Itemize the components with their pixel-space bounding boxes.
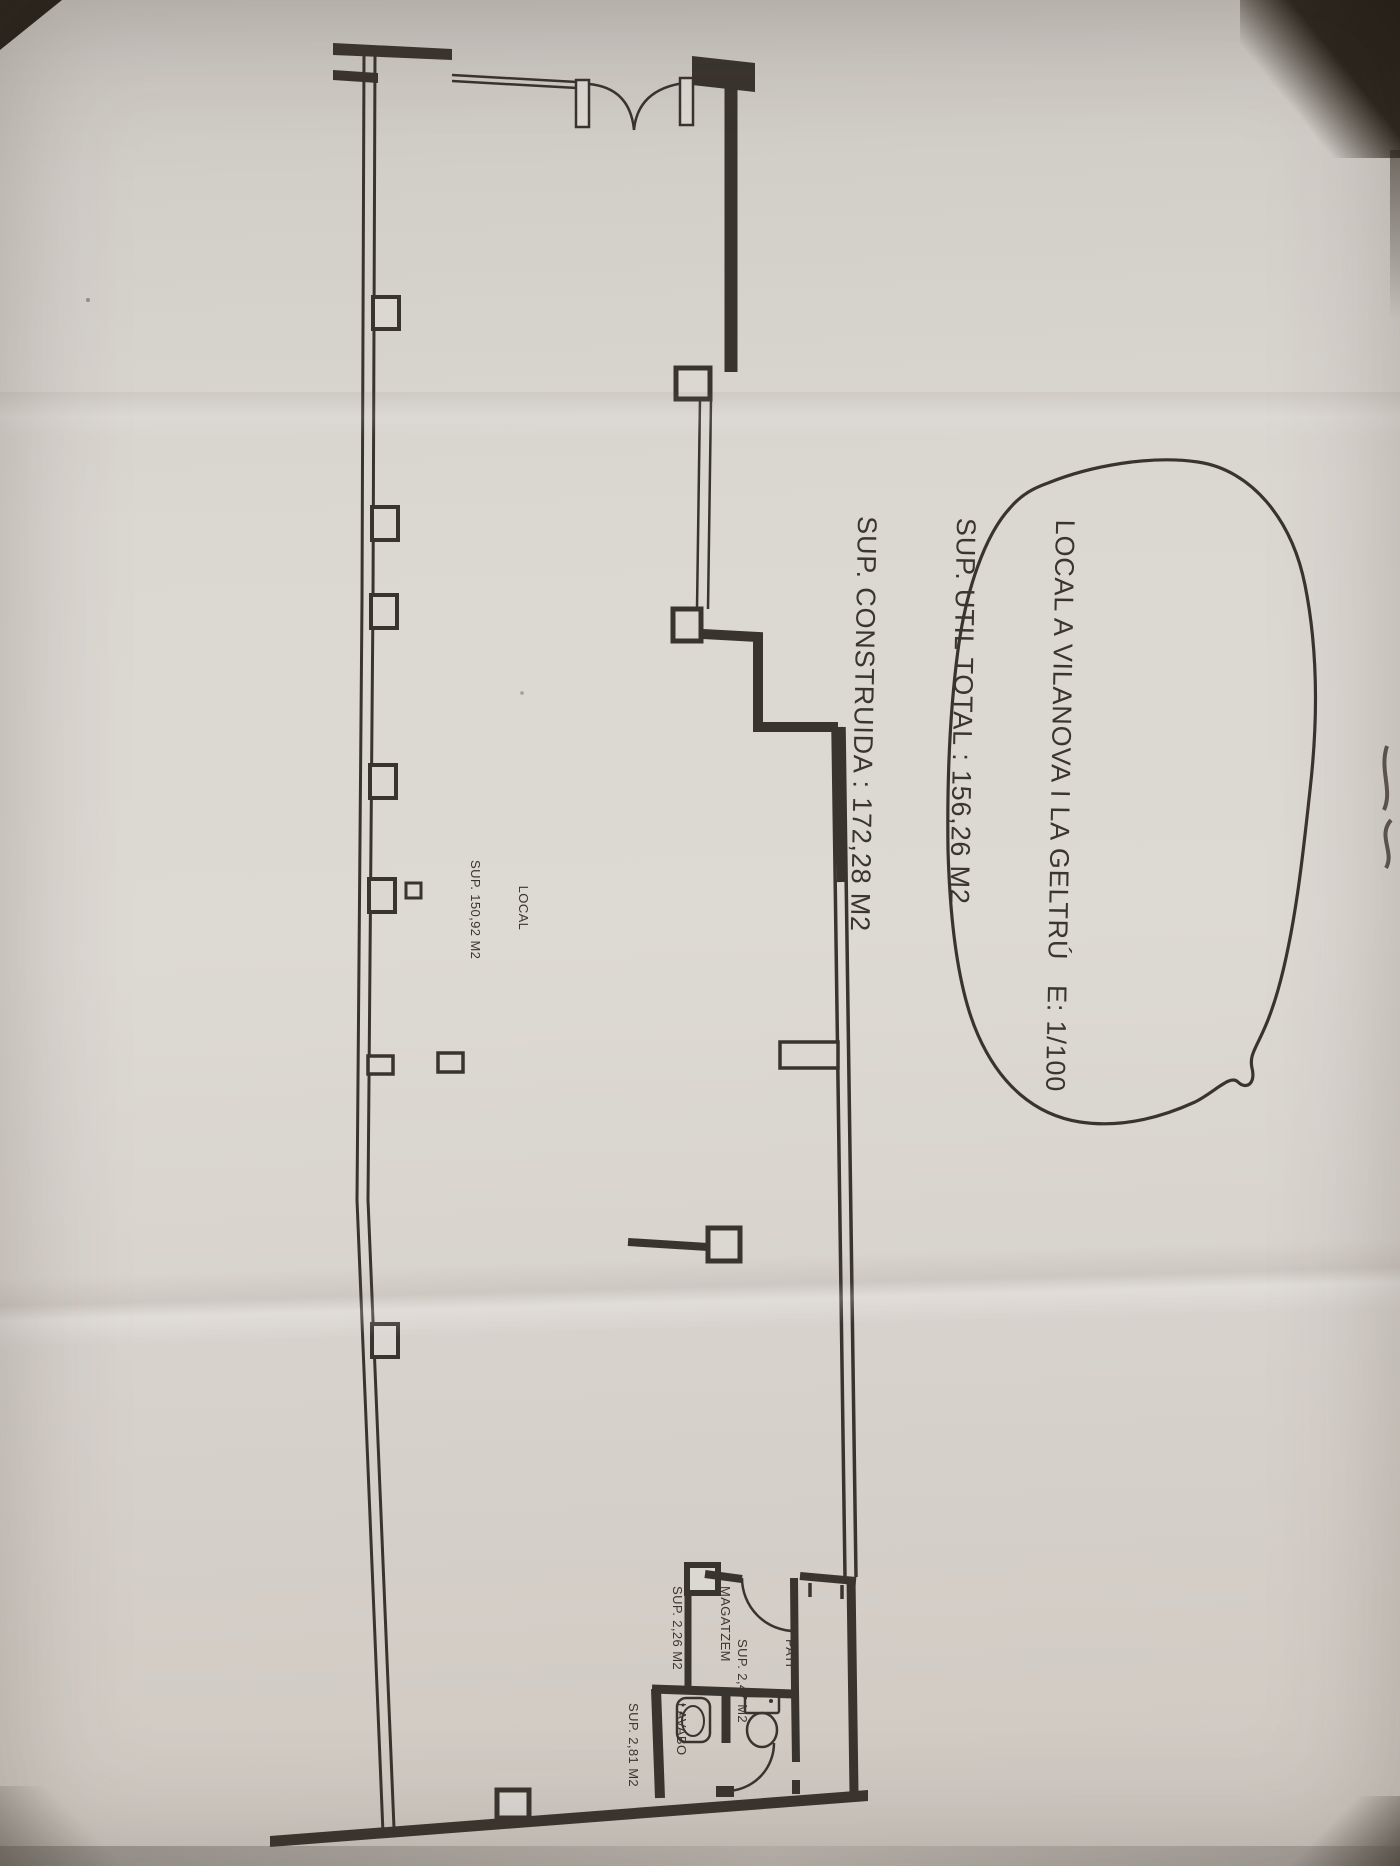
annotation-bubble-text: LOCAL A VILANOVA I LA GELTRÚ E: 1/100 SU… — [1017, 519, 1147, 1101]
room-label-local: LOCAL SUP. 150,92 M2 — [531, 860, 563, 956]
annotation-line-util: SUP. UTIL TOTAL : 156,26 M2 — [939, 518, 982, 1098]
pillar-left-4 — [370, 765, 396, 798]
photo-edge-shadow-right — [1390, 150, 1400, 320]
table-edge-shadow — [0, 1846, 1400, 1866]
column-mid-large — [438, 1053, 463, 1072]
pen-scribble — [1384, 746, 1391, 868]
room-area: SUP. 2,81 M2 — [625, 1703, 641, 1795]
wall-magatzem-top — [705, 1574, 742, 1579]
column-mid-small — [406, 883, 421, 898]
pillar-left-3 — [371, 595, 397, 628]
room-label-lavabo: LAVABO SUP. 2,81 M2 — [691, 1703, 721, 1795]
partition-stub-pillar — [708, 1228, 740, 1261]
room-name: LAVABO — [673, 1703, 689, 1795]
wall-top-right — [692, 56, 755, 92]
annotation-line-title: LOCAL A VILANOVA I LA GELTRÚ E: 1/100 — [1038, 519, 1081, 1099]
room-area: SUP. 2,47 M2 — [734, 1639, 750, 1729]
paper-speck-1 — [86, 298, 90, 302]
wall-pati-right — [851, 1577, 854, 1793]
pillar-bottom — [497, 1790, 529, 1818]
floor-plan-photo: LOCAL A VILANOVA I LA GELTRÚ E: 1/100 SU… — [0, 0, 1400, 1866]
wall-top-left-inner — [333, 70, 378, 83]
photo-corner-shadow-top-right — [1240, 0, 1400, 158]
door-jamb-right — [680, 78, 693, 125]
room-name: PATI — [782, 1639, 798, 1729]
wall-top-left — [333, 43, 452, 60]
pillar-left-5 — [369, 879, 395, 912]
pillar-left-2 — [372, 507, 398, 540]
room-label-pati: PATI SUP. 2,47 M2 — [800, 1639, 830, 1729]
partition-stub — [628, 1242, 708, 1247]
room-area: SUP. 150,92 M2 — [467, 860, 483, 956]
pillar-left-1 — [373, 297, 399, 329]
door-jamb-left — [576, 80, 589, 127]
paper-crease-top — [0, 392, 1400, 438]
annotation-line-construida: SUP. CONSTRUIDA : 172,28 M2 — [840, 516, 883, 1096]
paper-speck-2 — [520, 691, 524, 695]
room-name: LOCAL — [515, 860, 531, 956]
pillar-right-b — [673, 609, 701, 641]
room-area: SUP. 2,26 M2 — [669, 1586, 685, 1678]
pillar-left-6 — [368, 1056, 393, 1074]
wall-bottom — [270, 1790, 868, 1847]
entrance-door-leaf-left-arc — [589, 84, 634, 130]
lavabo-door-arc — [726, 1743, 774, 1791]
